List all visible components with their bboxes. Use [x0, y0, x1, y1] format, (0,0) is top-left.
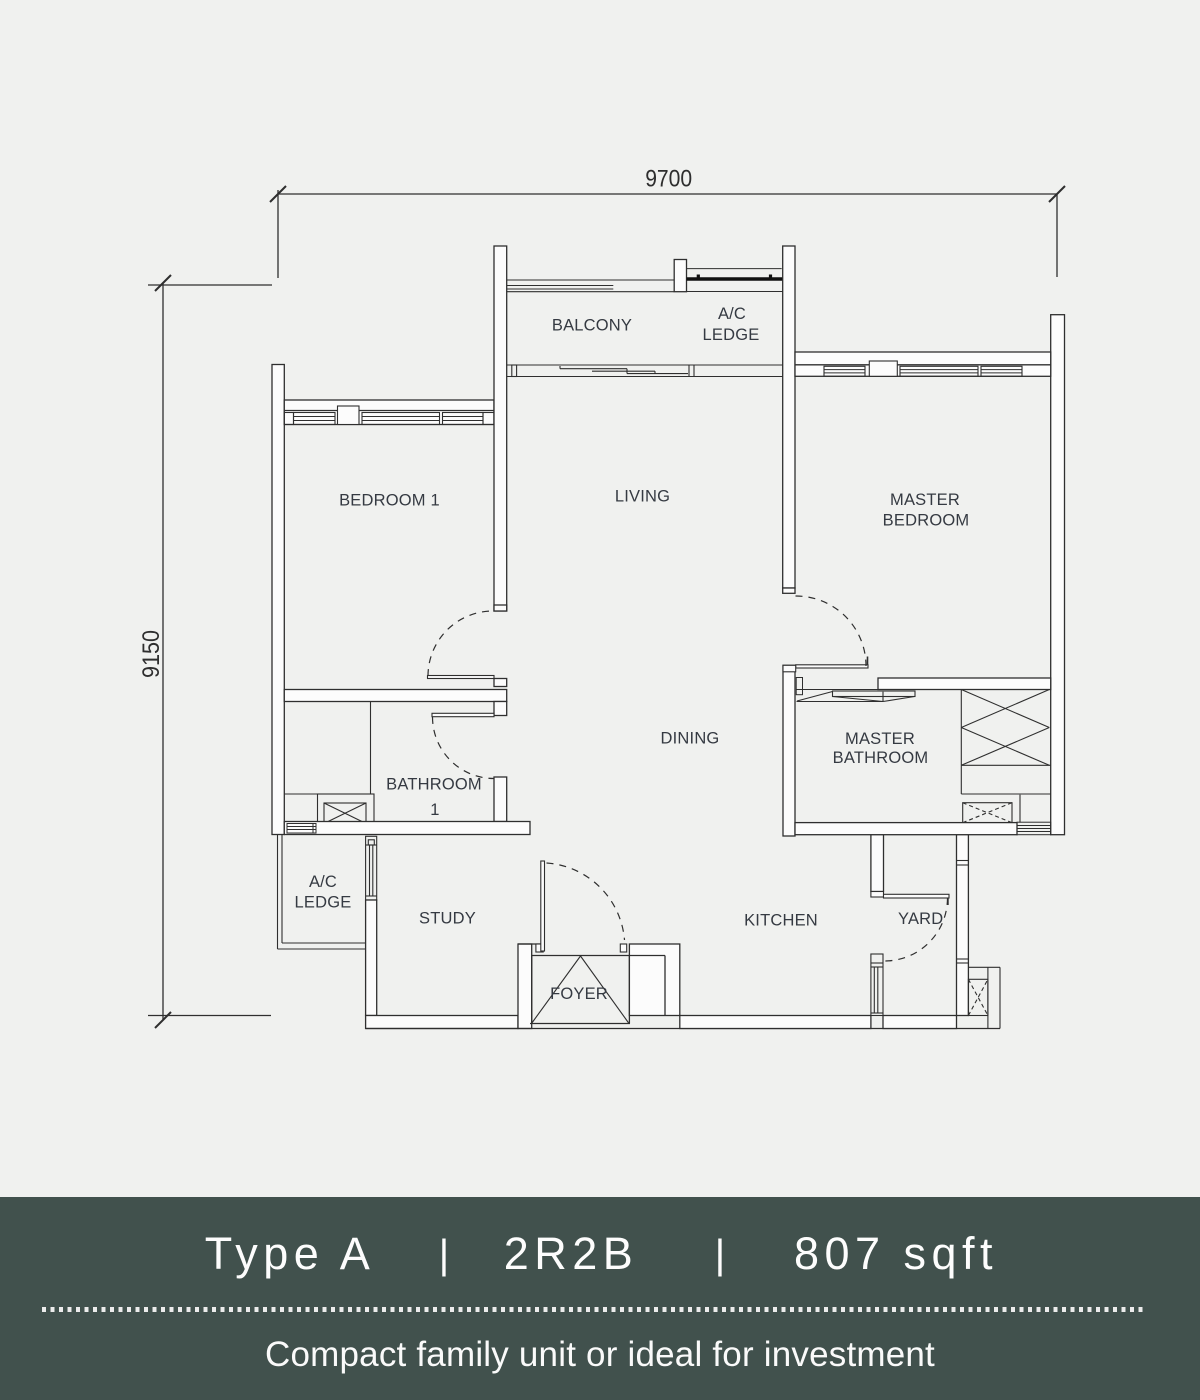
svg-text:BATHROOM: BATHROOM [833, 749, 929, 767]
svg-text:DINING: DINING [661, 730, 720, 748]
svg-text:FOYER: FOYER [550, 985, 608, 1003]
svg-text:LEDGE: LEDGE [703, 326, 760, 344]
svg-text:BATHROOM: BATHROOM [386, 776, 482, 794]
svg-text:A/C: A/C [309, 873, 337, 891]
svg-text:KITCHEN: KITCHEN [744, 912, 818, 930]
svg-text:YARD: YARD [898, 910, 943, 928]
svg-text:STUDY: STUDY [419, 910, 476, 928]
svg-text:9700: 9700 [645, 166, 692, 193]
svg-text:MASTER: MASTER [890, 491, 960, 509]
svg-text:A/C: A/C [718, 305, 746, 323]
svg-text:1: 1 [430, 801, 439, 819]
svg-text:MASTER: MASTER [845, 730, 915, 748]
svg-text:LIVING: LIVING [615, 488, 670, 506]
svg-text:BEDROOM 1: BEDROOM 1 [339, 492, 440, 510]
svg-text:BALCONY: BALCONY [552, 317, 632, 335]
svg-text:9150: 9150 [138, 630, 165, 678]
svg-text:BEDROOM: BEDROOM [883, 512, 970, 530]
svg-text:LEDGE: LEDGE [295, 894, 352, 912]
